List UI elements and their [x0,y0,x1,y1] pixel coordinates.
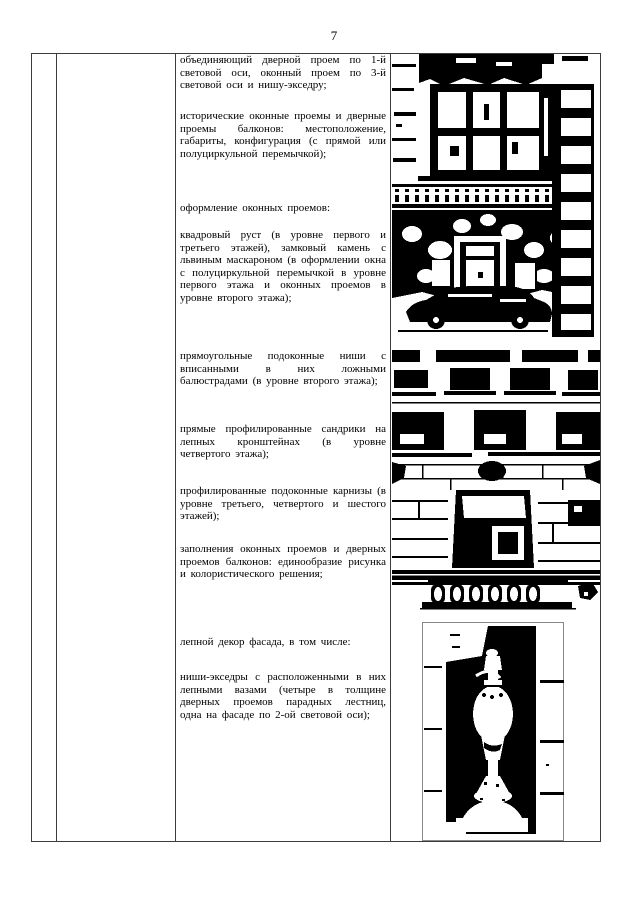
paragraph: прямые профилированные сандрики на лепны… [180,423,386,461]
paragraph: прямоугольные подоконные ниши с вписанны… [180,350,386,388]
paragraph: заполнения оконных проемов и дверных про… [180,543,386,581]
facade-bottom-up-view-photo [392,350,600,610]
stucco-vase-in-niche-photo [422,622,564,841]
table-column-empty-1 [32,54,57,841]
paragraph: оформление оконных проемов: [180,202,386,215]
paragraph: лепной декор фасада, в том числе: [180,636,386,649]
paragraph: профилированные подоконные карнизы (в ур… [180,485,386,523]
paragraph: ниши-экседры с расположенными в них лепн… [180,671,386,721]
paragraph: исторические оконные проемы и дверные пр… [180,110,386,160]
paragraph: объединяющий дверной проем по 1-й светов… [180,54,386,92]
table-column-text: объединяющий дверной проем по 1-й светов… [176,54,391,841]
page-number: 7 [322,28,346,43]
paragraph: квадровый руст (в уровне первого и треть… [180,229,386,305]
requirements-table: объединяющий дверной проем по 1-й светов… [31,53,601,842]
facade-window-entrance-photo [392,54,598,337]
table-column-photos [391,54,600,841]
table-column-empty-2 [57,54,176,841]
document-page: 7 объединяющий дверной проем по 1-й свет… [0,0,640,905]
